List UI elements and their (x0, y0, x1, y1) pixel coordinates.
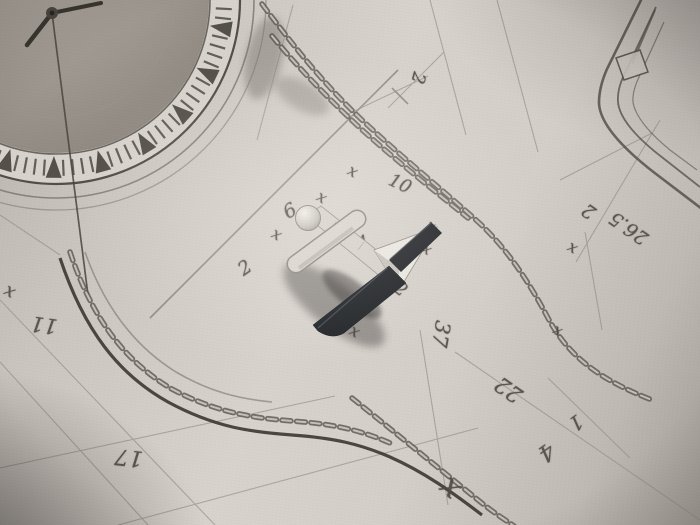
anchor-ring (296, 206, 321, 231)
photo-of-watch-sketch: 2226.561024123722411117xxxxxxxxxx (0, 0, 700, 525)
anchor-piece (0, 0, 700, 525)
